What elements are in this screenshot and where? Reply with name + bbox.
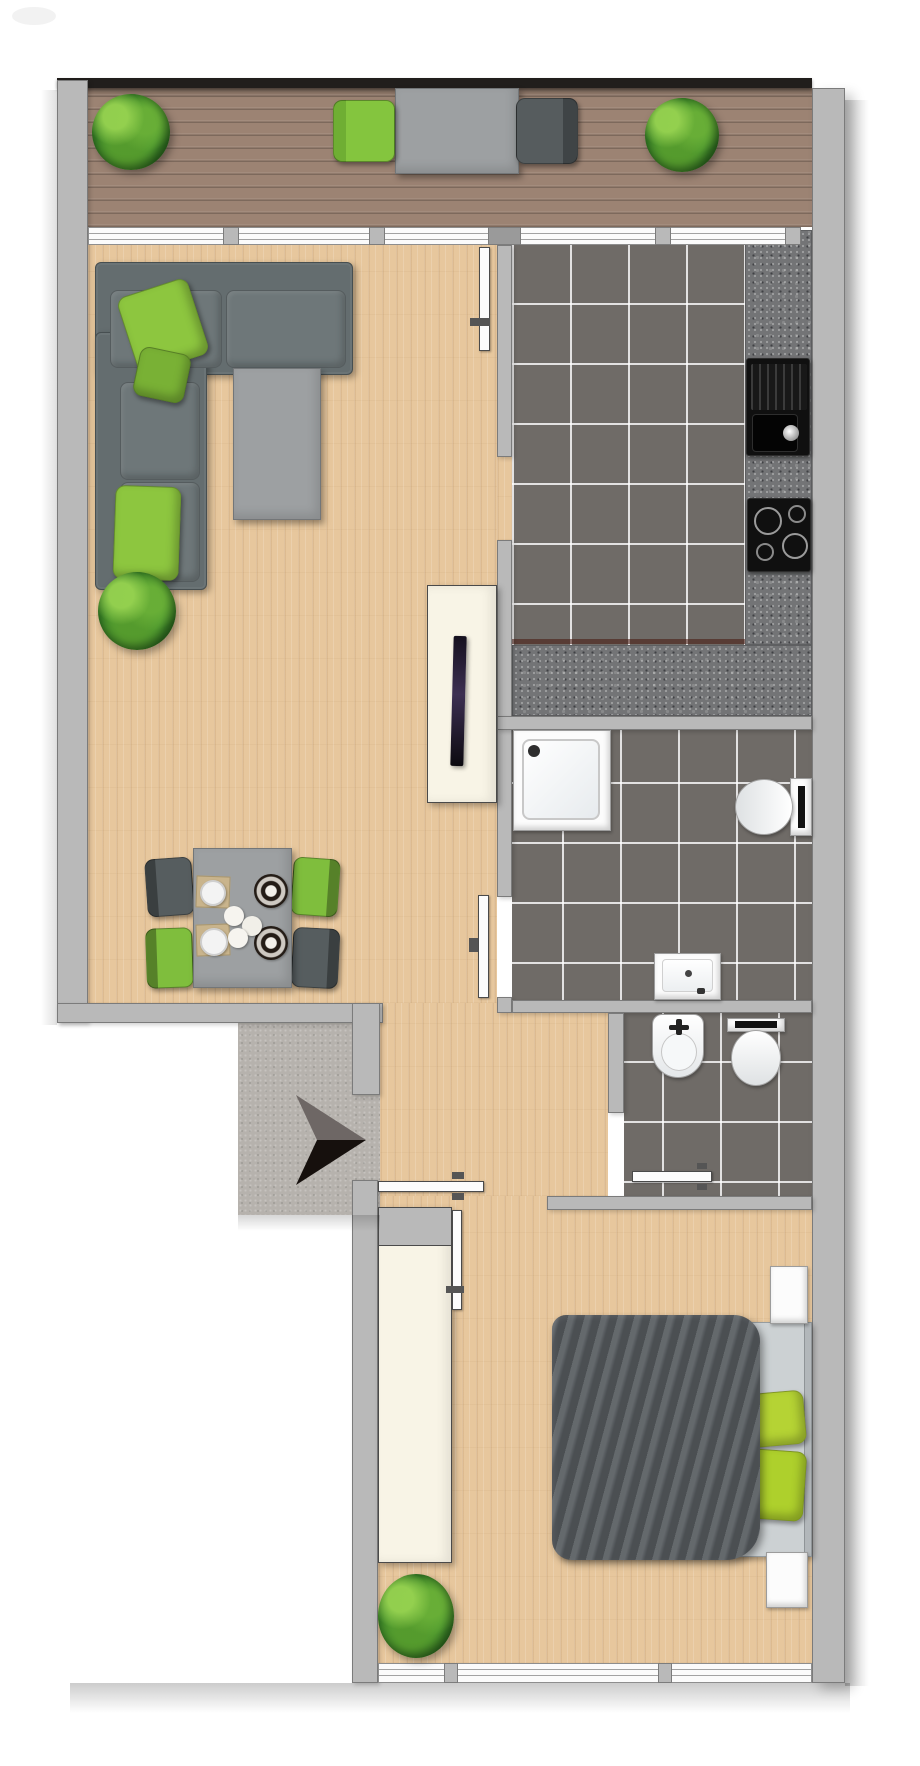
plate-white [200,928,228,956]
wall-bath-bottom [512,1000,812,1013]
window-mullion [655,227,671,245]
coffee-table [233,368,321,520]
washbasin-faucet [697,988,705,994]
burner [756,543,774,561]
entry-door-hinge [452,1172,464,1179]
bedroom-door-open [452,1210,462,1310]
wc-door-hinge [697,1184,707,1190]
balcony-railing [57,78,812,88]
balcony-plant-right [645,98,719,172]
burner [782,533,808,559]
corner-watermark [12,7,56,25]
bath-toilet-slot [798,786,805,828]
bed-headboard [804,1322,812,1557]
burner [788,505,806,523]
washbasin-drain [685,970,692,977]
dining-chair-green [145,927,194,989]
sink-faucet [783,425,799,441]
floor-plan [0,0,920,1766]
entry-door-hinge [452,1193,464,1200]
kitchen-door-threshold [497,457,512,540]
wardrobe [378,1207,452,1563]
burner [754,507,782,535]
wc-door-open [632,1171,712,1182]
bathroom-door-open [478,895,489,998]
balcony-green-lounger [333,100,395,162]
window-mullion [369,227,385,245]
shower-drain [528,745,540,757]
kitchen-floor [512,245,745,645]
entry-door-open [378,1181,484,1192]
counter-edge-line [512,639,745,644]
hallway-floor [380,1003,608,1196]
wall-wc-bottom [547,1196,812,1210]
bath-toilet-bowl [735,779,793,835]
window-balcony-front [88,227,800,245]
balcony-dark-chair [516,98,578,164]
entry-arrow [296,1095,366,1185]
window-mullion [223,227,239,245]
table-flower [228,928,248,948]
window-bedroom [378,1663,812,1683]
bidet [652,1014,704,1078]
wardrobe-top-section [379,1208,451,1246]
sofa-seat-pillow-green [112,485,181,581]
sofa-cushion [226,290,346,368]
bed-blanket [552,1315,760,1560]
nightstand [766,1552,808,1608]
wc-toilet-bowl [731,1030,781,1086]
living-room-plant [98,572,176,650]
wall-living-bottom [57,1003,383,1023]
kitchen-counter-bottom [512,645,812,716]
outer-shadow-left [41,90,57,1025]
outer-shadow-right [845,100,869,1686]
balcony-door-post [488,227,521,245]
wall-kitchen-bath [497,716,812,730]
dining-chair-gray [144,856,195,917]
nightstand [770,1266,808,1324]
kitchen-door-open [479,247,490,351]
dining-chair-gray [290,927,340,989]
wc-door-hinge [697,1163,707,1169]
balcony-plant-left [92,94,170,170]
window-mullion [444,1663,458,1683]
balcony-table [395,88,519,174]
sofa-pillow-green-small [131,345,192,405]
kitchen-door-handle [470,318,490,326]
table-flower [224,906,244,926]
window-mullion [658,1663,672,1683]
cooktop [747,498,811,572]
bidet-basin [661,1033,697,1071]
sink-drainboard [751,364,807,410]
wall-left [57,80,88,1023]
wc-toilet-slot [735,1021,777,1028]
wall-divider-upper [497,245,512,457]
plate-dark [254,874,288,908]
dining-chair-green [290,856,341,917]
bidet-faucet-bar [669,1025,689,1030]
wall-entry-step [352,1003,380,1095]
wall-wc-left [608,1013,624,1113]
bath-washbasin [654,953,721,1000]
outer-shadow-bottom [70,1683,850,1713]
plate-white [200,880,226,906]
window-mullion [785,227,801,245]
wall-bedroom-left [352,1180,378,1683]
shower [513,730,611,831]
bedroom-plant [378,1574,454,1658]
bedroom-door-handle [446,1286,464,1293]
kitchen-sink-unit [746,358,810,456]
wall-right [812,88,845,1683]
bathroom-door-handle [469,938,478,952]
wall-divider-stub [497,997,512,1013]
